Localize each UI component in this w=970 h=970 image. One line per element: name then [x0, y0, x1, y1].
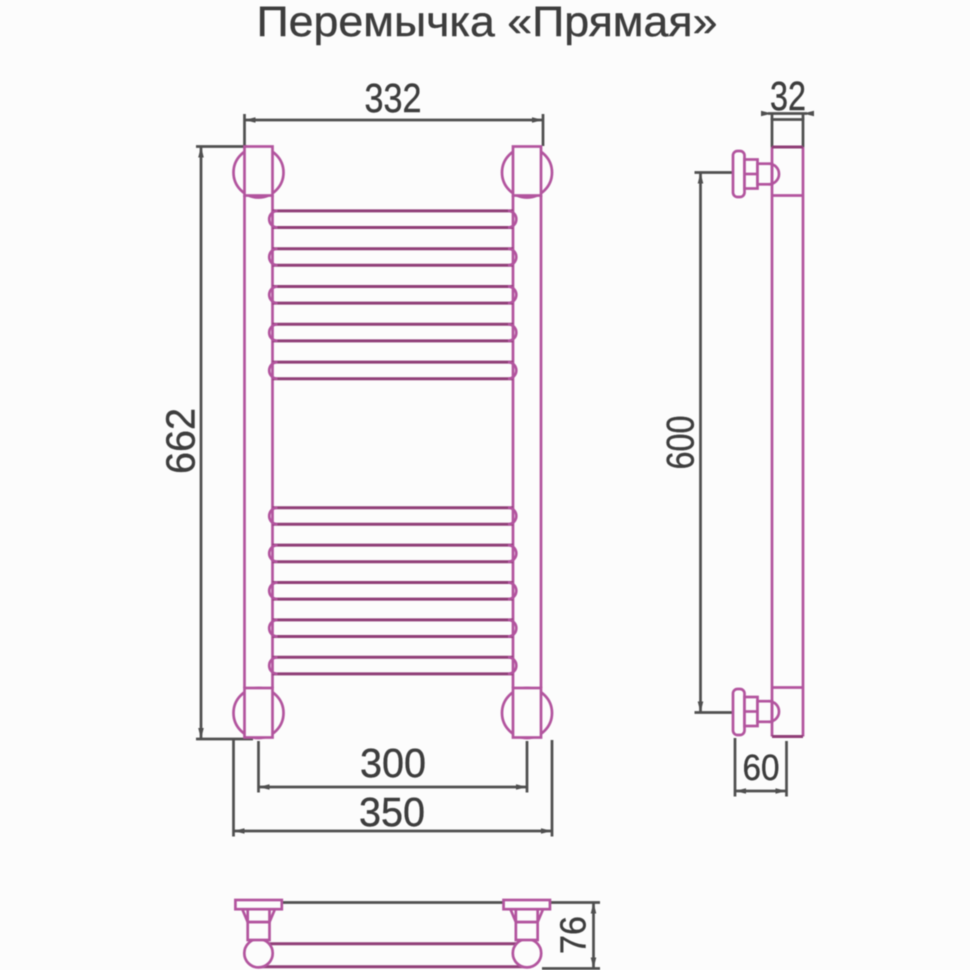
svg-text:32: 32	[770, 73, 806, 119]
svg-text:76: 76	[553, 916, 594, 954]
svg-text:Перемычка «Прямая»: Перемычка «Прямая»	[257, 0, 718, 46]
svg-text:600: 600	[660, 416, 703, 470]
svg-text:332: 332	[365, 75, 422, 121]
svg-text:300: 300	[360, 740, 426, 786]
svg-text:662: 662	[158, 408, 204, 474]
svg-text:60: 60	[743, 747, 780, 788]
svg-text:350: 350	[359, 789, 425, 835]
